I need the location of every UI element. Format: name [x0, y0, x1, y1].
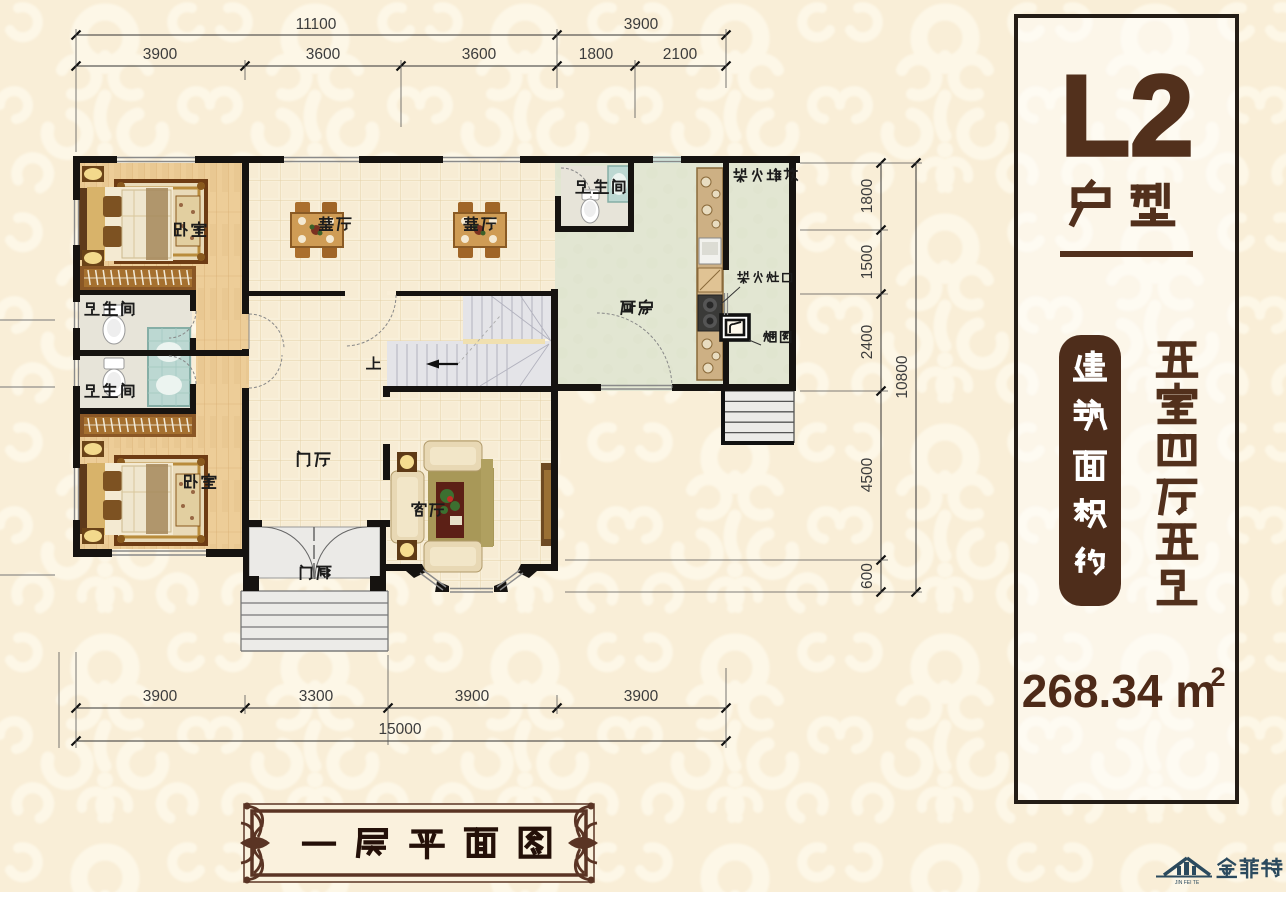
svg-text:2: 2 — [1210, 662, 1225, 692]
svg-text:11100: 11100 — [296, 16, 337, 33]
svg-text:4500: 4500 — [859, 457, 876, 492]
svg-text:3900: 3900 — [624, 16, 659, 33]
svg-text:3900: 3900 — [143, 688, 178, 705]
svg-text:10800: 10800 — [894, 355, 911, 398]
svg-text:2100: 2100 — [663, 46, 698, 63]
svg-text:3900: 3900 — [143, 46, 178, 63]
svg-text:3900: 3900 — [624, 688, 659, 705]
svg-text:3600: 3600 — [306, 46, 341, 63]
svg-text:3300: 3300 — [299, 688, 334, 705]
svg-text:1800: 1800 — [579, 46, 614, 63]
svg-text:1500: 1500 — [859, 244, 876, 279]
svg-text:1800: 1800 — [859, 178, 876, 213]
svg-text:3600: 3600 — [462, 46, 497, 63]
svg-text:15000: 15000 — [378, 721, 421, 738]
svg-text:600: 600 — [859, 563, 876, 589]
svg-text:268.34 m: 268.34 m — [1022, 665, 1216, 717]
svg-text:2400: 2400 — [859, 324, 876, 359]
svg-text:3900: 3900 — [455, 688, 490, 705]
svg-text:L2: L2 — [1060, 53, 1193, 180]
svg-text:JIN FEI TE: JIN FEI TE — [1175, 880, 1200, 886]
